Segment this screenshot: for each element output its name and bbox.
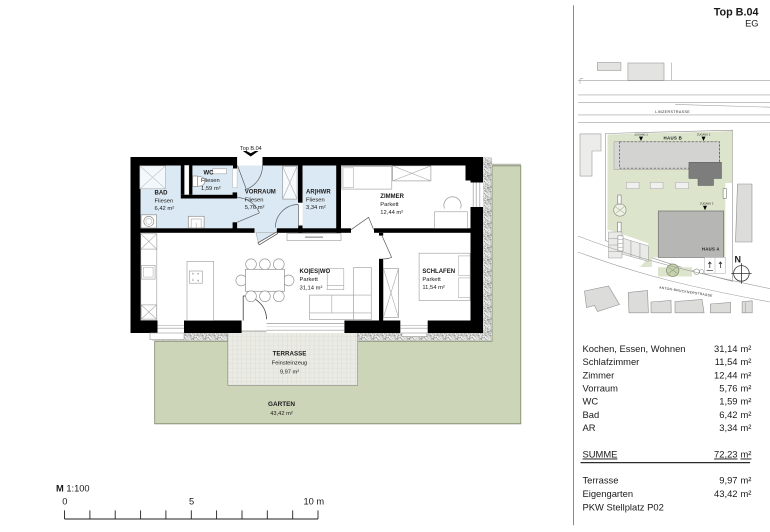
svg-text:Fliesen: Fliesen bbox=[155, 198, 174, 204]
svg-text:KO|ES|WO: KO|ES|WO bbox=[300, 269, 331, 275]
svg-text:Schlafzimmer: Schlafzimmer bbox=[583, 356, 640, 367]
svg-text:1,59: 1,59 bbox=[719, 396, 737, 407]
svg-text:Feinsteinzeug: Feinsteinzeug bbox=[272, 361, 307, 367]
svg-text:HAUS B: HAUS B bbox=[664, 136, 683, 141]
svg-text:43,42: 43,42 bbox=[714, 488, 737, 499]
svg-text:TERRASSE: TERRASSE bbox=[273, 351, 307, 358]
svg-text:Parkett: Parkett bbox=[422, 277, 441, 283]
svg-text:M 1:100: M 1:100 bbox=[56, 483, 90, 493]
svg-text:m²: m² bbox=[741, 488, 752, 499]
svg-text:12,44 m²: 12,44 m² bbox=[380, 210, 403, 216]
svg-text:Zimmer: Zimmer bbox=[583, 369, 615, 380]
svg-text:Top B.04: Top B.04 bbox=[240, 146, 262, 152]
svg-text:ZUGANG 1: ZUGANG 1 bbox=[635, 133, 649, 137]
svg-text:3,34 m²: 3,34 m² bbox=[306, 205, 326, 211]
svg-text:GARTEN: GARTEN bbox=[268, 401, 295, 408]
svg-text:Fliesen: Fliesen bbox=[245, 197, 264, 203]
svg-text:43,42 m²: 43,42 m² bbox=[270, 411, 293, 417]
svg-text:SCHLAFEN: SCHLAFEN bbox=[422, 269, 455, 275]
svg-text:m²: m² bbox=[741, 409, 752, 420]
svg-text:m²: m² bbox=[741, 422, 752, 433]
svg-text:6,42: 6,42 bbox=[719, 409, 737, 420]
svg-text:ZIMMER: ZIMMER bbox=[380, 194, 404, 200]
svg-text:11,54 m²: 11,54 m² bbox=[422, 285, 445, 291]
svg-text:72,23: 72,23 bbox=[714, 449, 737, 460]
svg-text:BAD: BAD bbox=[155, 191, 169, 197]
svg-text:10 m: 10 m bbox=[304, 496, 325, 506]
svg-text:HAUS A: HAUS A bbox=[702, 247, 720, 252]
svg-text:m²: m² bbox=[741, 396, 752, 407]
svg-text:31,14: 31,14 bbox=[714, 343, 737, 354]
svg-text:N: N bbox=[735, 255, 742, 265]
svg-text:Terrasse: Terrasse bbox=[583, 475, 619, 486]
svg-text:1,59 m²: 1,59 m² bbox=[201, 186, 221, 192]
svg-text:Eigengarten: Eigengarten bbox=[583, 488, 634, 499]
svg-text:SUMME: SUMME bbox=[583, 449, 618, 460]
svg-text:AR|HWR: AR|HWR bbox=[306, 189, 331, 195]
svg-text:5: 5 bbox=[189, 496, 194, 506]
svg-text:5,76: 5,76 bbox=[719, 383, 737, 394]
svg-text:Fliesen: Fliesen bbox=[201, 178, 220, 184]
svg-text:12,44: 12,44 bbox=[714, 369, 737, 380]
svg-text:m²: m² bbox=[741, 369, 752, 380]
svg-text:6,42 m²: 6,42 m² bbox=[155, 206, 175, 212]
svg-text:PKW Stellplatz P02: PKW Stellplatz P02 bbox=[583, 501, 664, 512]
svg-text:ZUGANG 2: ZUGANG 2 bbox=[697, 133, 711, 137]
svg-text:ZUGANG 3: ZUGANG 3 bbox=[700, 202, 714, 206]
svg-text:m²: m² bbox=[741, 475, 752, 486]
svg-text:9,97: 9,97 bbox=[719, 475, 737, 486]
svg-text:VORRAUM: VORRAUM bbox=[245, 189, 276, 195]
svg-text:11,54: 11,54 bbox=[715, 356, 738, 367]
svg-text:m²: m² bbox=[741, 383, 752, 394]
svg-text:EG: EG bbox=[745, 18, 758, 28]
svg-text:3,34: 3,34 bbox=[719, 422, 737, 433]
svg-text:m²: m² bbox=[741, 343, 752, 354]
svg-text:0: 0 bbox=[62, 496, 67, 506]
svg-text:5,76 m²: 5,76 m² bbox=[245, 205, 265, 211]
svg-text:WC: WC bbox=[204, 170, 215, 176]
svg-text:31,14 m²: 31,14 m² bbox=[300, 286, 323, 292]
svg-text:LINZERSTRASSE: LINZERSTRASSE bbox=[655, 110, 690, 114]
svg-text:WC: WC bbox=[583, 396, 599, 407]
svg-text:Parkett: Parkett bbox=[300, 277, 319, 283]
svg-text:m²: m² bbox=[741, 449, 752, 460]
svg-text:Bad: Bad bbox=[583, 409, 600, 420]
svg-text:Parkett: Parkett bbox=[380, 202, 399, 208]
svg-text:AR: AR bbox=[583, 422, 596, 433]
svg-text:Kochen, Essen, Wohnen: Kochen, Essen, Wohnen bbox=[583, 343, 686, 354]
svg-text:Vorraum: Vorraum bbox=[583, 383, 619, 394]
svg-text:9,97 m²: 9,97 m² bbox=[280, 370, 299, 376]
svg-text:Fliesen: Fliesen bbox=[306, 197, 325, 203]
svg-text:m²: m² bbox=[741, 356, 752, 367]
svg-text:Top B.04: Top B.04 bbox=[714, 6, 759, 18]
